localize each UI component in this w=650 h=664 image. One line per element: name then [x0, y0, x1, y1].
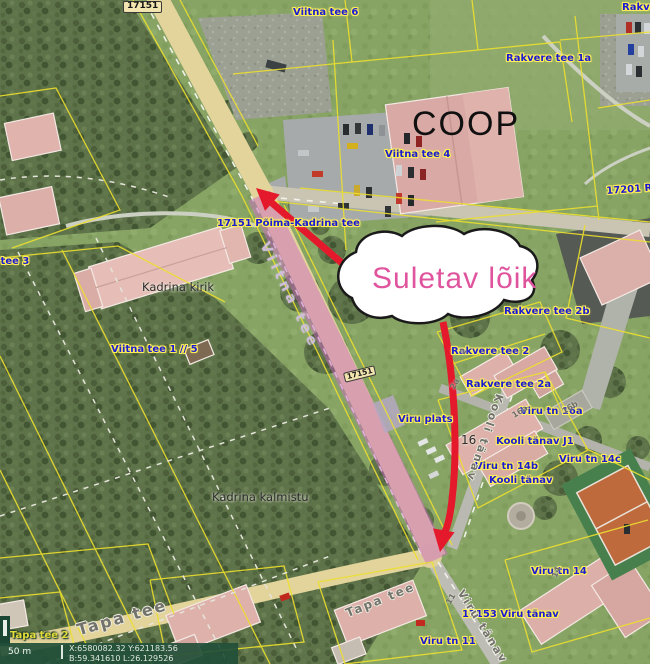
label-kadrina-kirik: Kadrina kirik — [142, 281, 214, 294]
label-poima-kadrina-tee: 17151 Põima-Kadrina tee — [217, 218, 360, 229]
closure-callout-text: Suletav lõik — [372, 262, 537, 295]
label-viitna-tee-4: Viitna tee 4 — [385, 149, 450, 160]
scale-indicator: 50 m — [8, 647, 31, 657]
label-viru-plats: Viru plats — [398, 414, 453, 425]
coordinates-bl: B:59.341610 L:26.129526 — [69, 654, 173, 663]
map-logo — [0, 616, 10, 646]
coordinates-xy: X:6580082.32 Y:621183.56 — [69, 644, 178, 653]
label-kooli-tanav-j1: Kooli tänav J1 — [496, 436, 574, 447]
label-viitna-tee-1-5: Viitna tee 1 // 5 — [111, 344, 198, 355]
road-number-badge-17151: 17151 — [123, 1, 162, 13]
label-rakvere-tee-1a: Rakvere tee 1a — [506, 53, 591, 64]
aerial-map-canvas — [0, 0, 650, 664]
label-coop: COOP — [412, 106, 520, 143]
label-kadrina-kalmistu: Kadrina kalmistu — [212, 491, 309, 504]
label-rakvere-tee-corner: Rakvere tee — [622, 2, 650, 13]
map-viewport[interactable]: 17151 17151 Viitna tee 6 Rakvere tee Rak… — [0, 0, 650, 664]
label-tapa-tee-2: Tapa tee 2 — [10, 630, 68, 641]
status-bar: 50 m X:6580082.32 Y:621183.56 B:59.34161… — [0, 643, 238, 664]
label-viru-tn-11: Viru tn 11 — [420, 636, 476, 647]
scale-tick — [61, 645, 63, 659]
label-viru-tn-14c: Viru tn 14c — [559, 454, 621, 465]
label-kooli-tanav: Kooli tänav — [489, 475, 553, 486]
label-rakvere-tee-2b: Rakvere tee 2b — [504, 306, 590, 317]
label-viitna-tee-6: Viitna tee 6 — [293, 7, 358, 18]
label-viru-tn-14b: Viru tn 14b — [475, 461, 538, 472]
label-rakvere-tee-2a: Rakvere tee 2a — [466, 379, 551, 390]
label-viitna-tee-3: Viitna tee 3 — [0, 256, 29, 267]
